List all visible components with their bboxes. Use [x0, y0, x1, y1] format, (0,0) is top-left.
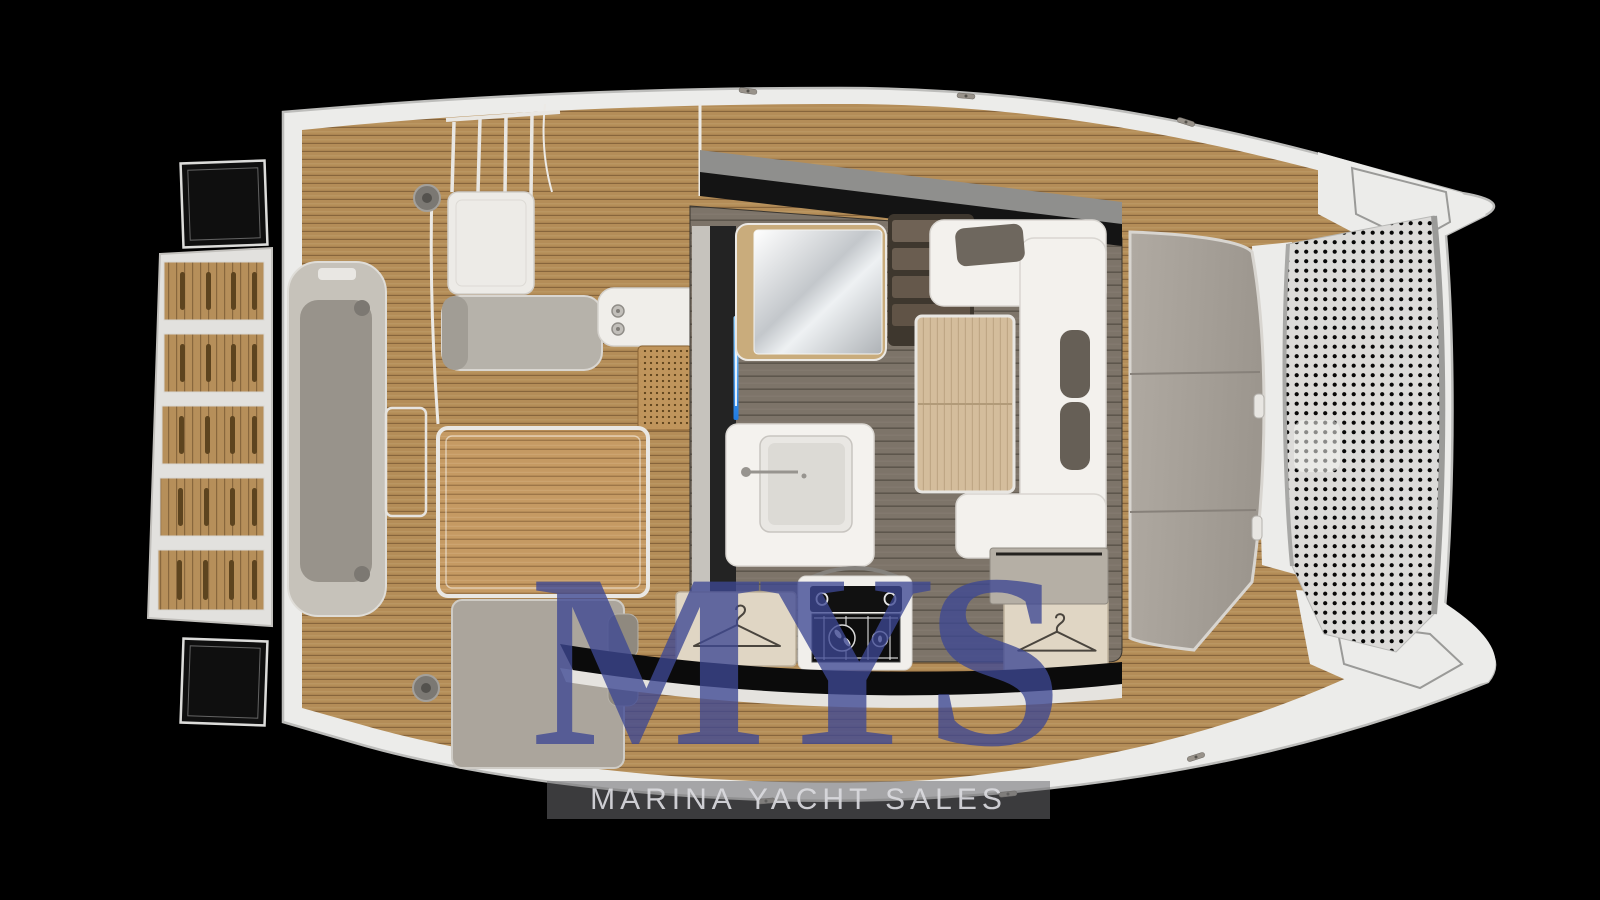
wardrobe-right: [1004, 596, 1108, 674]
trampoline: [1285, 216, 1443, 652]
platform-slat-section: [164, 334, 264, 392]
aft-bench: [288, 262, 386, 616]
trampoline-patch: [1294, 420, 1340, 472]
mirror-cabinet: [736, 224, 886, 360]
side-table: [386, 408, 426, 516]
swim-platform: [148, 248, 272, 626]
door-frame: [692, 226, 710, 594]
foredeck-pads: [1130, 232, 1264, 650]
saloon-table: [916, 316, 1014, 492]
yacht-top-view: [0, 0, 1600, 900]
wardrobe-left: [676, 592, 796, 666]
platform-slat-section: [162, 406, 264, 464]
chart-cabinet: [990, 548, 1108, 604]
aft-deck-hatch: [181, 639, 268, 726]
vent-grate: [638, 346, 692, 430]
mirror: [754, 230, 882, 354]
winch: [414, 185, 440, 211]
winch: [413, 675, 439, 701]
sofa-bolster: [1060, 402, 1090, 470]
sofa-pillow: [954, 223, 1025, 267]
galley-sink: [726, 424, 874, 566]
scene: MYS MARINA YACHT SALES: [0, 0, 1600, 900]
cockpit-table: [438, 428, 648, 596]
platform-slat-section: [164, 262, 264, 320]
stove: [798, 568, 912, 670]
cockpit-cabinet: [448, 192, 534, 294]
burner-large: [829, 625, 855, 651]
sofa-bolster: [1060, 330, 1090, 398]
platform-slat-section: [158, 550, 264, 610]
bench-speaker: [354, 300, 370, 316]
platform-slat-section: [160, 478, 264, 536]
cockpit-seat: [442, 296, 602, 370]
saloon: [676, 150, 1122, 674]
bench-speaker: [354, 566, 370, 582]
aft-deck-hatch: [181, 161, 268, 248]
sunpad-cushion: [608, 614, 638, 658]
